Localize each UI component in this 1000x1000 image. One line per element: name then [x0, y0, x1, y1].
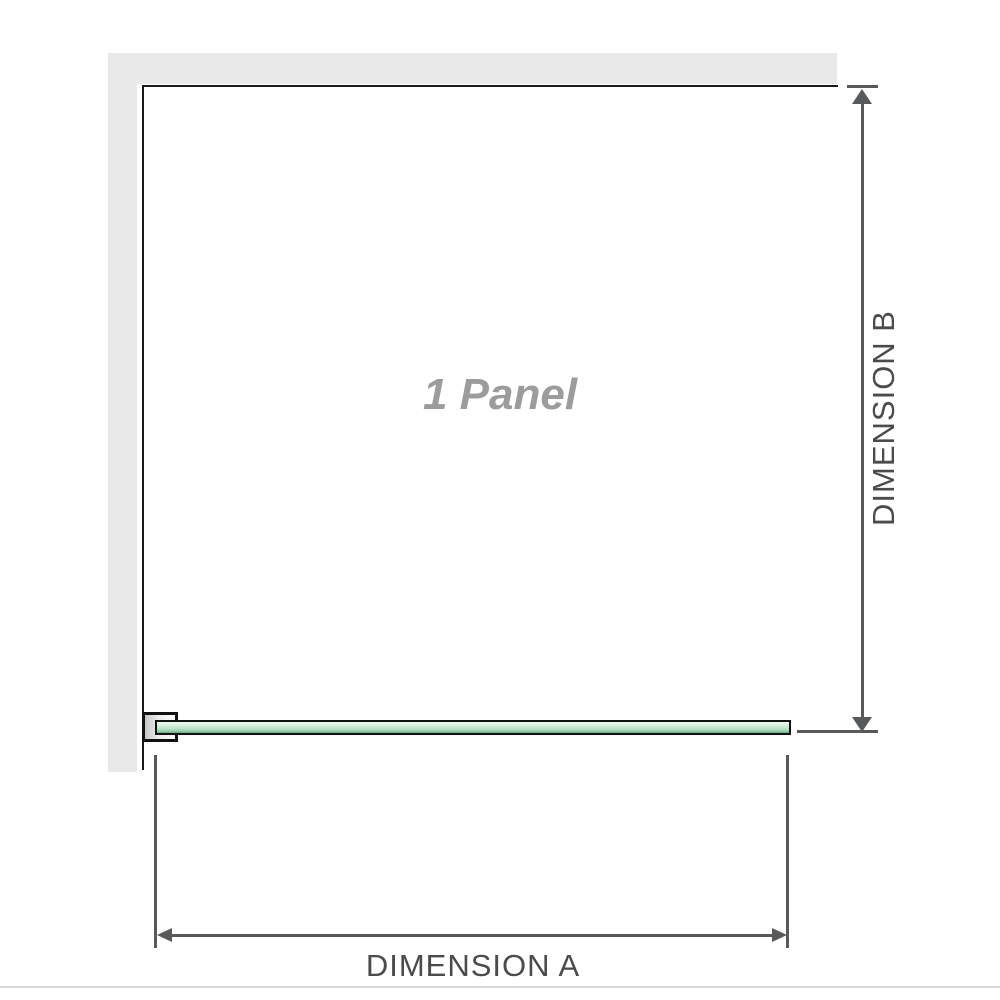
wall-left	[108, 53, 137, 772]
dimension-a-extension-left	[154, 755, 157, 948]
dimension-a-line	[166, 934, 778, 937]
dimension-b-line	[861, 100, 864, 722]
panel-label: 1 Panel	[423, 370, 577, 420]
dimension-b-tick-top	[847, 85, 878, 88]
arrow-right-icon	[772, 928, 787, 942]
dimension-b-label: DIMENSION B	[866, 310, 902, 526]
page-separator-line	[0, 986, 1000, 988]
dimension-a-extension-right	[786, 755, 789, 948]
dimension-a-label: DIMENSION A	[157, 948, 789, 984]
wall-top	[108, 53, 837, 84]
wall-inner-edge-top	[142, 85, 838, 87]
arrow-up-icon	[852, 89, 872, 104]
shower-panel-diagram: 1 Panel DIMENSION B DIMENSION A	[0, 0, 1000, 1000]
arrow-down-icon	[852, 717, 872, 732]
arrow-left-icon	[157, 928, 172, 942]
glass-panel	[155, 720, 791, 735]
wall-inner-edge-left	[142, 85, 144, 770]
